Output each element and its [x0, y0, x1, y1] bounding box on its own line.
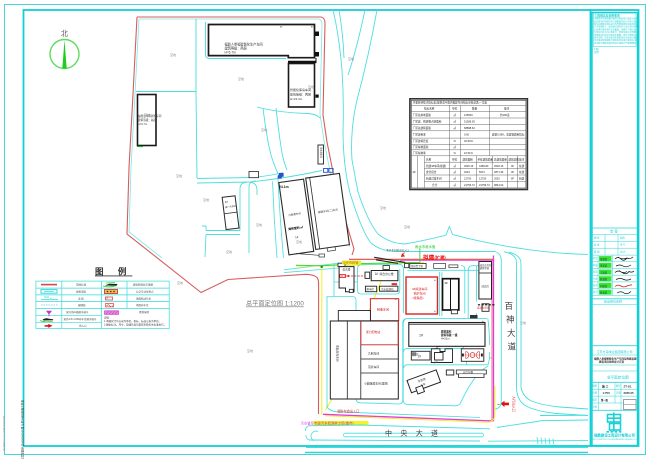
svg-text:厂区建筑密度: 厂区建筑密度: [413, 139, 429, 143]
svg-text:结构: 结构: [620, 236, 625, 240]
svg-text:空地: 空地: [247, 348, 253, 353]
svg-text:厂区建、构筑物占地面积: 厂区建、构筑物占地面积: [413, 119, 442, 123]
svg-text:H=23.3m: H=23.3m: [290, 97, 303, 101]
svg-text:空地: 空地: [296, 239, 302, 244]
svg-text:㎡: ㎡: [454, 113, 457, 117]
svg-text:成品发货区: 成品发货区: [477, 306, 490, 310]
svg-text:出入口: 出入口: [79, 324, 87, 328]
svg-text:名称: 名称: [426, 157, 432, 161]
svg-text:㎡: ㎡: [454, 177, 457, 181]
svg-text:9844.02: 9844.02: [494, 183, 504, 187]
svg-text:备注: 备注: [504, 107, 510, 111]
svg-text:福鼎建设工程设计有限公司: 福鼎建设工程设计有限公司: [593, 433, 635, 438]
svg-text:H=21m: H=21m: [441, 337, 449, 341]
svg-text:空地: 空地: [261, 127, 267, 132]
svg-text:单位: 单位: [452, 107, 458, 111]
svg-text:工程做法及说明事项: 工程做法及说明事项: [595, 13, 620, 17]
svg-text:12700: 12700: [464, 177, 472, 181]
svg-text:空地: 空地: [238, 76, 244, 81]
svg-text:成品库: 成品库: [482, 284, 490, 288]
svg-text:值班警卫室: 值班警卫室: [411, 264, 424, 268]
svg-text:厂区容积率: 厂区容积率: [413, 132, 426, 136]
svg-text:空地: 空地: [404, 224, 410, 229]
svg-text:人行出入口: 人行出入口: [512, 396, 517, 412]
svg-text:图 例: 图 例: [95, 267, 132, 277]
svg-text:在建: 在建: [519, 164, 525, 168]
svg-text:电 气: 电 气: [620, 243, 626, 247]
svg-text:H=6.7m: H=6.7m: [138, 122, 147, 126]
svg-text:会 签: 会 签: [610, 229, 618, 234]
svg-text:4F: 4F: [511, 164, 514, 168]
svg-text:合计: 合计: [432, 183, 438, 187]
svg-text:新建3#车间(拟建): 新建3#车间(拟建): [426, 164, 446, 168]
svg-text:大: 大: [507, 328, 516, 338]
svg-text:北: 北: [61, 29, 68, 38]
svg-text:4520.16: 4520.16: [494, 164, 504, 168]
svg-text:FUDING CONSTRUCTION ENGINEERIN: FUDING CONSTRUCTION ENGINEERING DESIGN C…: [590, 439, 640, 441]
svg-text:室外消声箱顺序编号: 室外消声箱顺序编号: [66, 310, 89, 314]
svg-text:21756.72: 21756.72: [479, 183, 490, 187]
svg-text:厂区总建筑面积: 厂区总建筑面积: [413, 126, 432, 130]
svg-text:单栋建筑面积: 单栋建筑面积: [478, 157, 494, 161]
svg-text:动 力: 动 力: [620, 249, 626, 253]
svg-text:总平面定位图 1:1200: 总平面定位图 1:1200: [246, 300, 304, 308]
svg-text:生产车间排水出入口: 生产车间排水出入口: [387, 248, 410, 252]
svg-text:说明:: 说明:: [104, 316, 110, 320]
svg-text:陈某某: 陈某某: [600, 291, 608, 295]
svg-text:空地: 空地: [348, 56, 354, 61]
svg-text:消防车道出入口: 消防车道出入口: [337, 409, 359, 414]
svg-text:空地: 空地: [226, 249, 232, 254]
svg-text:建设单位名称: 建设单位名称: [604, 299, 622, 304]
svg-text:1:750: 1:750: [603, 391, 611, 395]
svg-text:数量: 数量: [472, 107, 478, 111]
svg-text:在建: 在建: [519, 170, 525, 174]
svg-text:空地: 空地: [177, 280, 183, 285]
svg-text:24.1m: 24.1m: [279, 185, 289, 189]
svg-text:5°: 5°: [311, 25, 313, 29]
svg-text:㎡: ㎡: [454, 183, 457, 187]
svg-text:建筑等级：两层: 建筑等级：两层: [290, 92, 311, 97]
svg-text:公交车站位置点: 公交车站位置点: [136, 290, 154, 294]
svg-text:10.51%: 10.51%: [464, 151, 473, 155]
svg-text:建筑面积: 建筑面积: [463, 157, 474, 161]
svg-text:主要经济技术指标表(规划总平面内拟建车间指标审核意见)一览表: 主要经济技术指标表(规划总平面内拟建车间指标审核意见)一览表: [413, 101, 488, 105]
svg-text:建 筑: 建 筑: [594, 236, 600, 240]
svg-text:厂区绿地面积: 厂区绿地面积: [413, 145, 429, 149]
svg-text:指标名称: 指标名称: [424, 107, 435, 111]
svg-text:地面机动车位: 地面机动车位: [136, 296, 152, 300]
svg-text:21756.72: 21756.72: [464, 183, 475, 187]
svg-text:ZT-1/1: ZT-1/1: [624, 384, 633, 388]
svg-text:道 路: 道 路: [78, 296, 84, 300]
svg-text:·: ·: [449, 372, 450, 375]
svg-text:成品仓库车间: 成品仓库车间: [336, 345, 340, 362]
svg-text:给 排: 给 排: [594, 243, 600, 247]
svg-text:3#: 3#: [445, 281, 449, 285]
svg-text:68898.62: 68898.62: [464, 126, 475, 130]
svg-text:126500: 126500: [464, 113, 473, 117]
svg-text:配电房: 配电房: [367, 287, 375, 291]
svg-text:建筑等级:一级: 建筑等级:一级: [441, 333, 458, 337]
svg-text:厂区总用地面积: 厂区总用地面积: [413, 113, 432, 117]
svg-text:刘某某: 刘某某: [600, 284, 608, 288]
svg-text:空地: 空地: [170, 52, 176, 57]
svg-text:6F: 6F: [511, 177, 514, 181]
svg-text:赵某某: 赵某某: [600, 277, 608, 281]
svg-text:2871.36: 2871.36: [494, 170, 504, 174]
svg-text:污水处理站: 污水处理站: [381, 287, 394, 291]
svg-text:5°: 5°: [280, 25, 282, 29]
svg-text:能力配电站: 能力配电站: [366, 330, 380, 334]
svg-text:5672: 5672: [479, 170, 485, 174]
svg-text:制曲车间: 制曲车间: [377, 307, 389, 312]
svg-text:建筑面积: 建筑面积: [441, 330, 452, 334]
svg-text:围墙线: 围墙线: [78, 303, 86, 307]
svg-text:㎡: ㎡: [454, 164, 457, 168]
svg-text:(扩建): (扩建): [435, 254, 447, 261]
svg-text:江苏方舟味业集团有限公司: 江苏方舟味业集团有限公司: [597, 349, 633, 354]
svg-text:雨水市政水管: 雨水市政水管: [415, 244, 436, 249]
svg-text:王某某: 王某某: [600, 270, 608, 274]
svg-text:中央市政管: 中央市政管: [343, 260, 359, 265]
svg-text:3F: 3F: [511, 170, 514, 174]
svg-text:九制车间: 九制车间: [368, 352, 379, 356]
svg-text:说明: 说明: [594, 50, 599, 54]
svg-text:景观绿地: 景观绿地: [139, 310, 150, 314]
svg-text:厂区绿地率: 厂区绿地率: [413, 151, 426, 155]
svg-text:0.60: 0.60: [464, 132, 470, 136]
svg-text:建筑0.598，总建筑面积指标: 建筑0.598，总建筑面积指标: [492, 132, 525, 136]
svg-text:约190亩: 约190亩: [500, 113, 510, 117]
svg-text:空地: 空地: [256, 222, 262, 227]
svg-text:道: 道: [508, 342, 517, 352]
svg-text:H=6.7m: H=6.7m: [225, 51, 237, 55]
svg-text:拟建: 拟建: [423, 253, 435, 261]
svg-text:备注: 备注: [519, 157, 525, 161]
svg-text:2052: 2052: [494, 177, 500, 181]
svg-text:单位: 单位: [452, 157, 458, 161]
svg-text:1.本图尺寸均以米为单位，坐标、标高以米为单位。: 1.本图尺寸均以米为单位，坐标、标高以米为单位。: [104, 319, 161, 323]
svg-text:㎡: ㎡: [454, 119, 457, 123]
svg-text:40.54%: 40.54%: [464, 139, 473, 143]
svg-text:总平面定位图: 总平面定位图: [607, 375, 629, 380]
svg-text:㎡: ㎡: [454, 126, 457, 130]
svg-text:4486.80: 4486.80: [479, 164, 489, 168]
svg-text:百: 百: [505, 301, 514, 311]
svg-text:空地: 空地: [176, 173, 182, 178]
svg-text:新建: 新建: [519, 177, 525, 181]
svg-text:李某某: 李某某: [600, 264, 608, 268]
svg-text:12700: 12700: [479, 177, 487, 181]
svg-text:4023: 4023: [464, 170, 470, 174]
svg-text:中 央 大 道: 中 央 大 道: [385, 429, 441, 438]
svg-text:暖 通: 暖 通: [594, 249, 600, 253]
svg-text:P:: P:: [107, 298, 110, 301]
svg-text:张某某: 张某某: [600, 257, 608, 261]
svg-text:蒸煮车间: 蒸煮车间: [368, 365, 379, 369]
svg-text:空地: 空地: [308, 84, 314, 89]
svg-text:综合办公楼: 综合办公楼: [380, 272, 394, 276]
svg-text:食堂宿舍: 食堂宿舍: [426, 170, 437, 174]
svg-text:总建筑面积: 总建筑面积: [494, 157, 507, 161]
svg-text:规划道路: 规划道路: [76, 290, 87, 294]
svg-text:1#: 1#: [375, 272, 379, 276]
svg-text:建筑等级：两层: 建筑等级：两层: [138, 118, 157, 122]
svg-text:神: 神: [506, 315, 515, 325]
svg-text:㎡: ㎡: [454, 145, 457, 149]
svg-text:建设工程规划许可证号 第3502000000号 审图备案: 建设工程规划许可证号 第3502000000号 审图备案号 2025-0000: [21, 400, 25, 459]
svg-text:地面停车位: 地面停车位: [136, 303, 149, 307]
svg-text:1#: 1#: [419, 334, 423, 338]
svg-text:建设项目规划设计方案: 建设项目规划设计方案: [598, 359, 625, 363]
svg-text:4520.16: 4520.16: [464, 164, 474, 168]
svg-text:自行车棚: 自行车棚: [463, 370, 474, 374]
svg-text:锅炉车间: 锅炉车间: [414, 291, 426, 296]
svg-text:新建过渡车间: 新建过渡车间: [426, 177, 442, 181]
svg-text:污水管至: 污水管至: [301, 421, 315, 426]
svg-text:3#拟建车间: 3#拟建车间: [412, 286, 427, 291]
svg-text:施 工: 施 工: [601, 384, 609, 388]
svg-text:㎡: ㎡: [454, 170, 457, 174]
svg-text:空地: 空地: [203, 197, 209, 202]
svg-text:小曲酿酒车间(发酵): 小曲酿酒车间(发酵): [364, 382, 388, 386]
svg-text:2.图中标注，尺寸，管线布局均参照市政有关标准执行。: 2.图中标注，尺寸，管线布局均参照市政有关标准执行。: [104, 323, 166, 327]
svg-text:建筑层数: 建筑层数: [509, 157, 520, 161]
svg-text:(特殊层): (特殊层): [413, 295, 424, 300]
svg-text:51286.05: 51286.05: [464, 119, 475, 123]
svg-text:空地: 空地: [380, 205, 386, 210]
svg-text:2025.05: 2025.05: [624, 391, 635, 395]
svg-text:用地红线: 用地红线: [76, 283, 87, 287]
svg-text:空地: 空地: [144, 112, 150, 117]
svg-text:宿舍楼: 宿舍楼: [343, 267, 351, 271]
svg-text:建筑物现状示意图: 建筑物现状示意图: [133, 283, 154, 287]
svg-text:室外4.8×1.8M停车位顺序编号: 室外4.8×1.8M停车位顺序编号: [64, 317, 97, 321]
